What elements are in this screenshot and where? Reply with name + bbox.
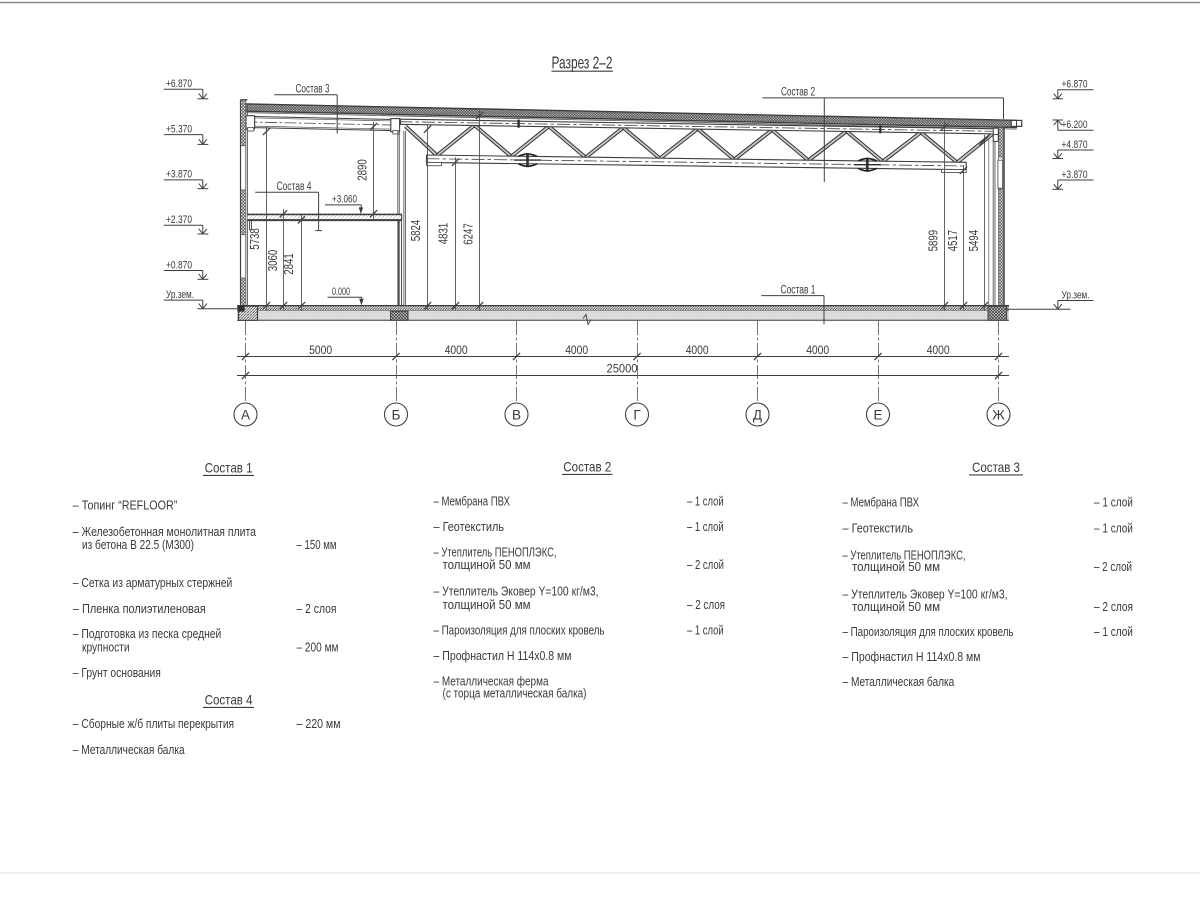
svg-text:4000: 4000 <box>686 345 709 357</box>
svg-text:Состав 3: Состав 3 <box>296 84 330 96</box>
svg-text:+6.200: +6.200 <box>1062 119 1088 131</box>
svg-text:А: А <box>241 407 250 422</box>
svg-text:Б: Б <box>392 407 401 422</box>
svg-text:толщиной 50 мм: толщиной 50 мм <box>443 558 531 572</box>
svg-text:(с торца металлическая балка): (с торца металлическая балка) <box>443 687 587 701</box>
svg-text:Состав 1: Состав 1 <box>781 285 816 297</box>
svg-text:Состав 4: Состав 4 <box>277 181 312 193</box>
svg-text:– 200 мм: – 200 мм <box>297 641 339 655</box>
svg-text:6247: 6247 <box>461 223 476 245</box>
svg-text:5000: 5000 <box>309 345 332 357</box>
svg-text:Г: Г <box>633 407 641 422</box>
svg-text:Ж: Ж <box>992 407 1005 422</box>
svg-text:– 2 слоя: – 2 слоя <box>297 602 337 616</box>
svg-text:2890: 2890 <box>355 159 370 181</box>
svg-text:толщиной 50 мм: толщиной 50 мм <box>852 600 940 614</box>
svg-text:+2.370: +2.370 <box>166 214 192 226</box>
svg-text:Разрез 2–2: Разрез 2–2 <box>552 53 613 73</box>
svg-text:Ур.зем.: Ур.зем. <box>1062 289 1090 301</box>
svg-text:+6.870: +6.870 <box>1062 79 1088 91</box>
svg-text:– 1 слой: – 1 слой <box>1094 522 1133 536</box>
svg-text:– Сетка из арматурных стержней: – Сетка из арматурных стержней <box>73 576 233 590</box>
svg-text:Состав 2: Состав 2 <box>563 459 611 475</box>
svg-text:5824: 5824 <box>408 220 423 242</box>
svg-text:Состав 3: Состав 3 <box>972 459 1020 475</box>
svg-text:+0.870: +0.870 <box>166 259 192 271</box>
svg-text:– Подготовка из песка средней: – Подготовка из песка средней <box>73 627 222 641</box>
svg-text:3060: 3060 <box>265 250 280 272</box>
svg-text:– Железобетонная монолитная п: – Железобетонная монолитная плита <box>73 525 256 539</box>
svg-text:4000: 4000 <box>445 345 468 357</box>
svg-text:+3.060: +3.060 <box>332 194 357 206</box>
svg-text:Ур.зем.: Ур.зем. <box>166 289 194 301</box>
svg-text:– Профнастил Н 114х0.8 мм: – Профнастил Н 114х0.8 мм <box>843 650 981 664</box>
svg-text:– Утеплитель Эковер Y=100 кг/м: – Утеплитель Эковер Y=100 кг/м3, <box>434 585 599 599</box>
svg-text:– 1 слой: – 1 слой <box>1094 496 1133 510</box>
svg-text:5494: 5494 <box>966 230 981 252</box>
svg-text:Д: Д <box>753 407 762 422</box>
svg-text:– Мембрана ПВХ: – Мембрана ПВХ <box>434 495 511 509</box>
svg-text:– 2 слой: – 2 слой <box>1094 560 1132 574</box>
svg-text:– 150 мм: – 150 мм <box>297 538 337 552</box>
svg-text:+6.870: +6.870 <box>166 78 192 90</box>
svg-text:– Сборные ж/б плиты перекрытия: – Сборные ж/б плиты перекрытия <box>73 717 234 731</box>
svg-text:2841: 2841 <box>281 253 296 275</box>
svg-text:– 1 слой: – 1 слой <box>687 520 724 534</box>
svg-text:– Мембрана ПВХ: – Мембрана ПВХ <box>843 496 920 510</box>
svg-text:+5.370: +5.370 <box>166 123 192 135</box>
svg-text:4517: 4517 <box>945 230 960 252</box>
svg-text:5899: 5899 <box>926 230 941 252</box>
svg-text:– Грунт основания: – Грунт основания <box>73 666 161 680</box>
svg-text:– Пароизоляция для плоских кро: – Пароизоляция для плоских кровель <box>434 624 605 638</box>
svg-text:+3.870: +3.870 <box>1062 169 1088 181</box>
svg-text:– Топинг “REFLOOR”: – Топинг “REFLOOR” <box>73 499 178 513</box>
svg-text:4000: 4000 <box>927 345 950 357</box>
svg-text:25000: 25000 <box>607 364 638 376</box>
svg-text:– 2 слой: – 2 слой <box>687 558 724 572</box>
svg-text:– Геотекстиль: – Геотекстиль <box>843 522 914 536</box>
svg-text:– 220 мм: – 220 мм <box>297 717 341 731</box>
svg-text:Состав 1: Состав 1 <box>205 460 253 476</box>
svg-text:– Профнастил Н 114х0.8 мм: – Профнастил Н 114х0.8 мм <box>434 649 572 663</box>
svg-text:0.000: 0.000 <box>332 286 350 298</box>
svg-text:толщиной 50 мм: толщиной 50 мм <box>443 598 531 612</box>
svg-text:– Пленка полиэтиленовая: – Пленка полиэтиленовая <box>73 602 206 616</box>
svg-text:– Металлическая балка: – Металлическая балка <box>843 675 955 689</box>
svg-text:Состав 2: Состав 2 <box>781 87 815 99</box>
svg-text:Е: Е <box>873 407 882 422</box>
svg-text:– 2 слоя: – 2 слоя <box>1094 600 1133 614</box>
svg-text:4000: 4000 <box>806 345 829 357</box>
svg-text:– Пароизоляция для плоских кро: – Пароизоляция для плоских кровель <box>843 625 1014 639</box>
svg-text:– 1 слой: – 1 слой <box>687 624 724 638</box>
svg-text:– Металлическая балка: – Металлическая балка <box>73 743 185 757</box>
svg-text:5738: 5738 <box>247 228 262 250</box>
svg-text:Состав 4: Состав 4 <box>205 692 253 708</box>
svg-text:из бетона В 22.5 (М300): из бетона В 22.5 (М300) <box>82 538 194 552</box>
svg-text:+3.870: +3.870 <box>166 169 192 181</box>
svg-text:– 1 слой: – 1 слой <box>1094 625 1133 639</box>
svg-text:В: В <box>512 407 521 422</box>
svg-text:крупности: крупности <box>82 641 130 655</box>
svg-text:толщиной 50 мм: толщиной 50 мм <box>852 560 940 574</box>
svg-text:– 1 слой: – 1 слой <box>687 495 724 509</box>
svg-text:4000: 4000 <box>565 345 588 357</box>
svg-text:– 2 слоя: – 2 слоя <box>687 598 725 612</box>
svg-text:– Геотекстиль: – Геотекстиль <box>434 520 505 534</box>
svg-text:4831: 4831 <box>436 223 451 245</box>
svg-text:+4.870: +4.870 <box>1062 139 1088 151</box>
